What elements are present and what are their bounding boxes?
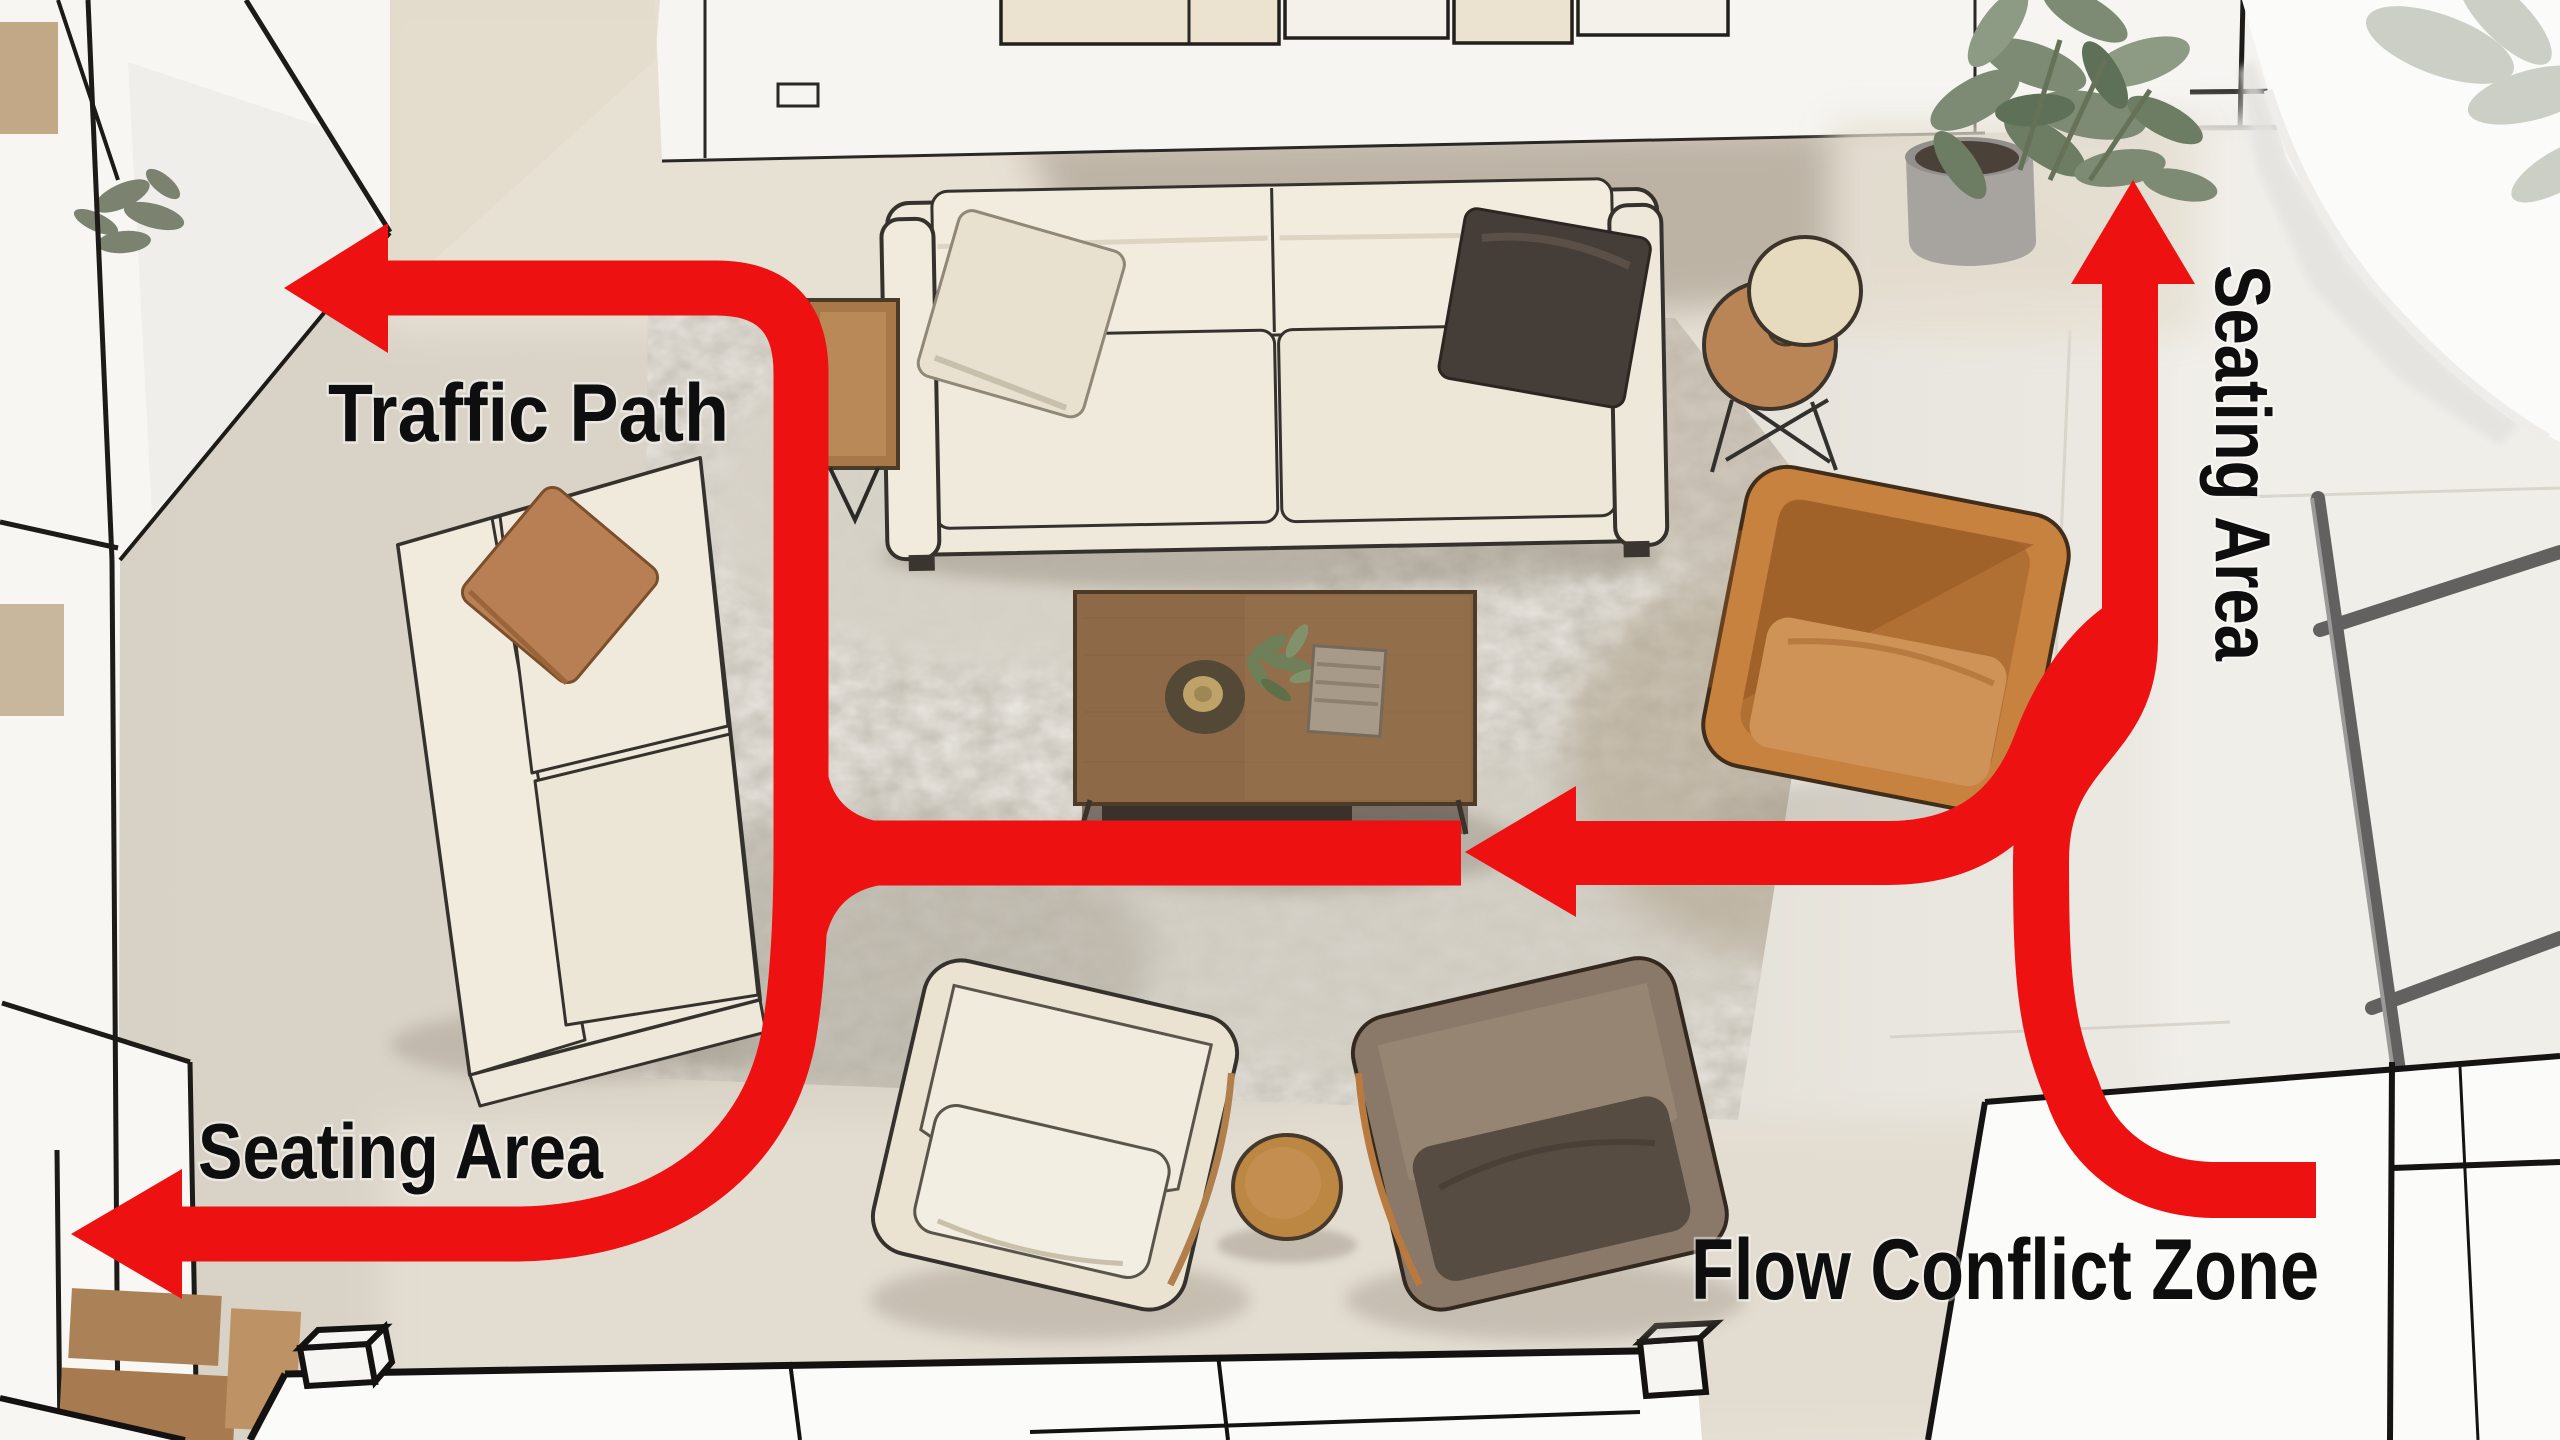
svg-text:Seating Area: Seating Area bbox=[2199, 265, 2287, 662]
svg-text:Seating Area: Seating Area bbox=[198, 1107, 604, 1195]
svg-text:Traffic Path: Traffic Path bbox=[328, 368, 729, 459]
svg-text:Flow Conflict Zone: Flow Conflict Zone bbox=[1691, 1222, 2319, 1318]
